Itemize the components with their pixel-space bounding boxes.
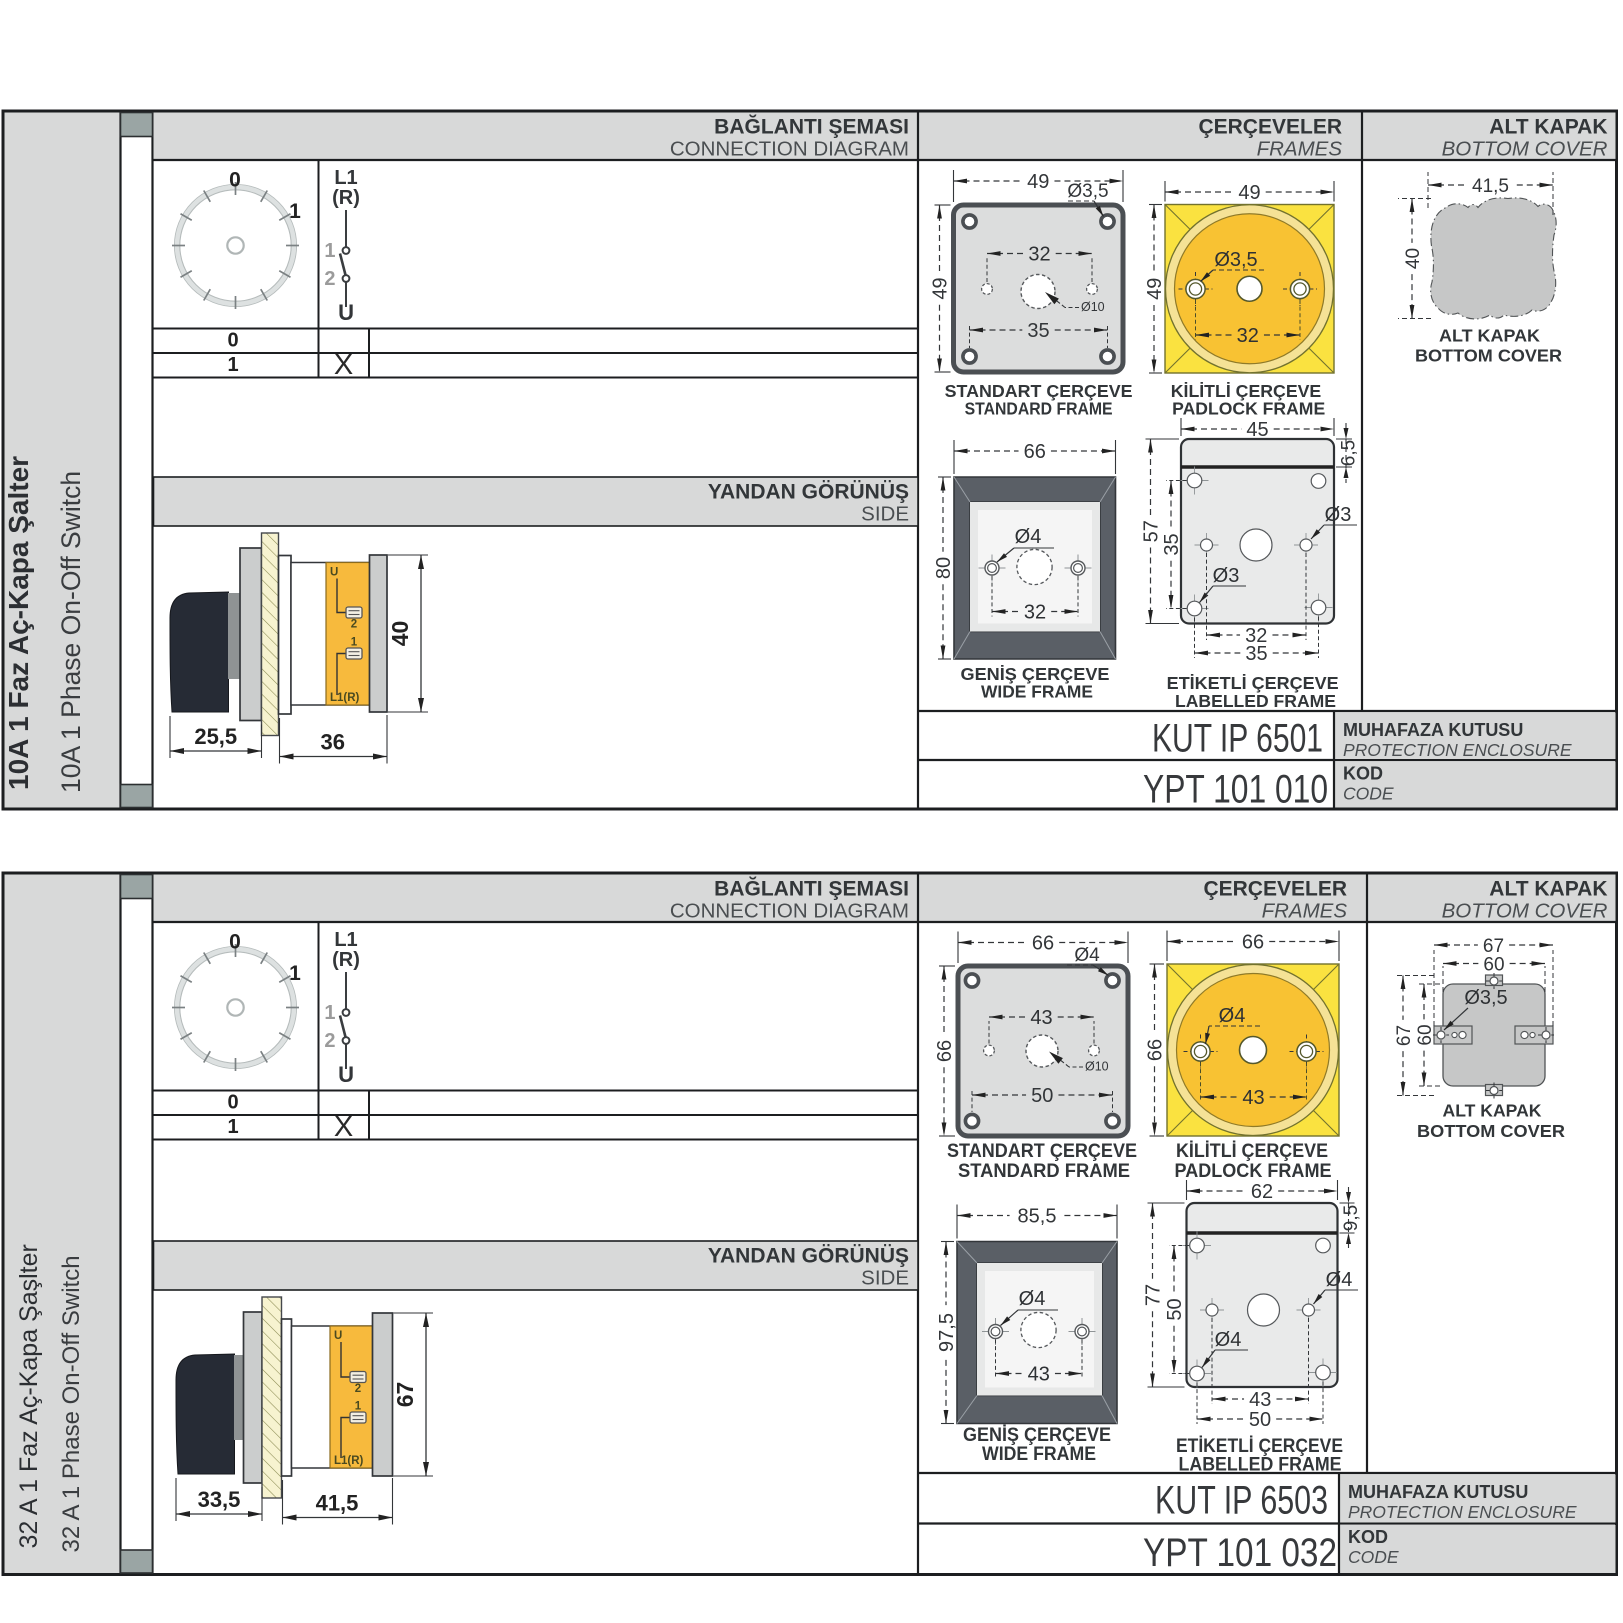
svg-text:Ø4: Ø4: [1326, 1269, 1353, 1291]
svg-text:60: 60: [1415, 1024, 1436, 1045]
svg-text:Ø4: Ø4: [1074, 945, 1100, 966]
svg-text:ALT KAPAK: ALT KAPAK: [1489, 116, 1607, 139]
svg-text:35: 35: [1027, 320, 1049, 342]
svg-text:49: 49: [1238, 182, 1260, 204]
svg-text:35: 35: [1245, 643, 1267, 665]
svg-text:43: 43: [1249, 1389, 1271, 1411]
svg-text:CODE: CODE: [1343, 784, 1394, 804]
svg-text:ETİKETLİ ÇERÇEVE: ETİKETLİ ÇERÇEVE: [1167, 673, 1339, 693]
svg-text:33,5: 33,5: [198, 1487, 241, 1512]
svg-text:67: 67: [1394, 1025, 1415, 1046]
svg-text:SIDE: SIDE: [861, 503, 909, 526]
svg-text:50: 50: [1164, 1298, 1186, 1320]
svg-text:50: 50: [1249, 1409, 1271, 1431]
svg-text:L1(R): L1(R): [330, 692, 360, 704]
svg-text:U: U: [334, 1330, 342, 1342]
svg-text:ÇERÇEVELER: ÇERÇEVELER: [1198, 116, 1342, 139]
svg-text:40: 40: [1403, 248, 1424, 269]
svg-text:ALT KAPAK: ALT KAPAK: [1439, 326, 1540, 346]
svg-text:Ø4: Ø4: [1219, 1005, 1246, 1027]
svg-text:67: 67: [392, 1382, 418, 1408]
svg-text:STANDARD FRAME: STANDARD FRAME: [958, 1161, 1130, 1182]
svg-text:32 A 1 Faz Aç-Kapa Şaşlter: 32 A 1 Faz Aç-Kapa Şaşlter: [15, 1244, 43, 1548]
svg-text:97,5: 97,5: [936, 1313, 958, 1352]
svg-text:85,5: 85,5: [1018, 1206, 1057, 1228]
svg-text:2: 2: [355, 1383, 361, 1395]
svg-text:0: 0: [227, 330, 238, 352]
svg-text:X: X: [334, 349, 353, 381]
svg-text:1: 1: [289, 200, 301, 223]
svg-text:STANDART ÇERÇEVE: STANDART ÇERÇEVE: [947, 1141, 1137, 1162]
svg-text:U: U: [330, 567, 338, 579]
svg-text:50: 50: [1031, 1085, 1053, 1107]
svg-text:43: 43: [1242, 1087, 1264, 1109]
svg-text:41,5: 41,5: [316, 1491, 359, 1516]
svg-text:ALT KAPAK: ALT KAPAK: [1443, 1101, 1542, 1121]
svg-text:57: 57: [1141, 520, 1163, 542]
svg-text:32: 32: [1028, 244, 1050, 266]
svg-text:KUT IP 6503: KUT IP 6503: [1155, 1479, 1328, 1523]
svg-text:35: 35: [1161, 533, 1183, 555]
svg-text:X: X: [334, 1111, 353, 1143]
svg-text:YANDAN GÖRÜNÜŞ: YANDAN GÖRÜNÜŞ: [708, 481, 909, 504]
svg-text:0: 0: [229, 931, 241, 954]
svg-text:32 A 1 Phase On-Off Switch: 32 A 1 Phase On-Off Switch: [58, 1255, 85, 1552]
svg-text:1: 1: [289, 962, 301, 985]
svg-text:0: 0: [227, 1092, 238, 1114]
svg-text:1: 1: [351, 637, 358, 649]
svg-text:43: 43: [1028, 1364, 1050, 1386]
svg-text:Ø3,5: Ø3,5: [1214, 249, 1257, 271]
svg-text:FRAMES: FRAMES: [1262, 900, 1348, 923]
svg-text:STANDARD FRAME: STANDARD FRAME: [965, 399, 1113, 419]
svg-text:10A 1 Phase On-Off Switch: 10A 1 Phase On-Off Switch: [56, 471, 86, 793]
svg-text:Ø3: Ø3: [1213, 565, 1240, 587]
svg-text:YPT 101 032: YPT 101 032: [1143, 1531, 1337, 1575]
svg-text:Ø4: Ø4: [1215, 1329, 1242, 1351]
svg-text:SIDE: SIDE: [861, 1267, 909, 1290]
svg-text:ALT KAPAK: ALT KAPAK: [1489, 878, 1607, 901]
svg-text:PROTECTION ENCLOSURE: PROTECTION ENCLOSURE: [1348, 1502, 1577, 1522]
svg-text:43: 43: [1030, 1007, 1052, 1029]
svg-text:80: 80: [933, 557, 955, 579]
svg-text:32: 32: [1024, 602, 1046, 624]
svg-text:40: 40: [387, 621, 413, 647]
svg-text:6,5: 6,5: [1339, 440, 1360, 466]
svg-text:45: 45: [1246, 419, 1268, 441]
svg-text:1: 1: [227, 354, 238, 376]
svg-text:66: 66: [1242, 932, 1264, 954]
svg-text:KİLİTLİ ÇERÇEVE: KİLİTLİ ÇERÇEVE: [1176, 1141, 1328, 1162]
svg-text:BOTTOM COVER: BOTTOM COVER: [1442, 138, 1608, 161]
svg-text:Ø10: Ø10: [1081, 300, 1105, 314]
svg-text:KOD: KOD: [1348, 1527, 1388, 1547]
svg-text:KOD: KOD: [1343, 764, 1383, 784]
svg-text:LABELLED FRAME: LABELLED FRAME: [1179, 1455, 1342, 1476]
svg-text:25,5: 25,5: [194, 724, 237, 749]
svg-text:62: 62: [1251, 1181, 1273, 1203]
svg-text:PROTECTION ENCLOSURE: PROTECTION ENCLOSURE: [1343, 740, 1572, 760]
svg-text:60: 60: [1483, 955, 1504, 976]
svg-text:YANDAN GÖRÜNÜŞ: YANDAN GÖRÜNÜŞ: [708, 1245, 909, 1268]
svg-text:BAĞLANTI ŞEMASI: BAĞLANTI ŞEMASI: [714, 877, 909, 901]
svg-text:0: 0: [229, 169, 241, 192]
svg-text:1: 1: [227, 1116, 238, 1138]
svg-text:GENİŞ ÇERÇEVE: GENİŞ ÇERÇEVE: [963, 1425, 1111, 1446]
svg-text:BOTTOM COVER: BOTTOM COVER: [1442, 900, 1608, 923]
svg-text:Ø4: Ø4: [1019, 1288, 1046, 1310]
svg-text:41,5: 41,5: [1472, 176, 1509, 197]
svg-text:BOTTOM COVER: BOTTOM COVER: [1415, 346, 1562, 366]
svg-text:FRAMES: FRAMES: [1257, 138, 1343, 161]
svg-text:WIDE FRAME: WIDE FRAME: [981, 682, 1093, 702]
svg-text:Ø10: Ø10: [1085, 1060, 1109, 1074]
svg-text:BOTTOM COVER: BOTTOM COVER: [1417, 1121, 1565, 1141]
svg-text:36: 36: [321, 730, 345, 755]
svg-text:MUHAFAZA KUTUSU: MUHAFAZA KUTUSU: [1343, 720, 1523, 740]
svg-text:49: 49: [1027, 171, 1049, 193]
svg-text:BAĞLANTI ŞEMASI: BAĞLANTI ŞEMASI: [714, 115, 909, 139]
svg-text:66: 66: [1145, 1039, 1167, 1061]
svg-text:PADLOCK FRAME: PADLOCK FRAME: [1175, 1161, 1332, 1182]
svg-text:ÇERÇEVELER: ÇERÇEVELER: [1203, 878, 1347, 901]
svg-text:CONNECTION DIAGRAM: CONNECTION DIAGRAM: [670, 900, 909, 923]
svg-text:KUT IP 6501: KUT IP 6501: [1152, 717, 1323, 761]
svg-text:9,5: 9,5: [1341, 1205, 1362, 1231]
svg-text:2: 2: [351, 619, 357, 631]
svg-text:CONNECTION DIAGRAM: CONNECTION DIAGRAM: [670, 138, 909, 161]
svg-text:66: 66: [1032, 933, 1054, 955]
svg-text:10A 1 Faz Aç-Kapa Şalter: 10A 1 Faz Aç-Kapa Şalter: [3, 456, 34, 790]
svg-text:77: 77: [1143, 1284, 1165, 1306]
svg-text:Ø3: Ø3: [1325, 504, 1352, 526]
svg-text:Ø3,5: Ø3,5: [1067, 181, 1108, 202]
svg-text:1: 1: [355, 1401, 362, 1413]
svg-text:Ø4: Ø4: [1015, 526, 1042, 548]
svg-text:49: 49: [930, 277, 952, 299]
svg-text:49: 49: [1144, 278, 1166, 300]
svg-text:LABELLED FRAME: LABELLED FRAME: [1175, 691, 1336, 711]
svg-text:66: 66: [934, 1040, 956, 1062]
svg-text:32: 32: [1237, 325, 1259, 347]
svg-text:66: 66: [1024, 441, 1046, 463]
svg-text:WIDE FRAME: WIDE FRAME: [982, 1444, 1096, 1465]
svg-text:YPT 101 010: YPT 101 010: [1143, 768, 1328, 812]
svg-text:MUHAFAZA KUTUSU: MUHAFAZA KUTUSU: [1348, 1482, 1528, 1502]
svg-text:L1(R): L1(R): [334, 1455, 364, 1467]
svg-text:CODE: CODE: [1348, 1547, 1399, 1567]
svg-text:Ø3,5: Ø3,5: [1464, 987, 1507, 1009]
svg-text:PADLOCK FRAME: PADLOCK FRAME: [1172, 399, 1325, 419]
